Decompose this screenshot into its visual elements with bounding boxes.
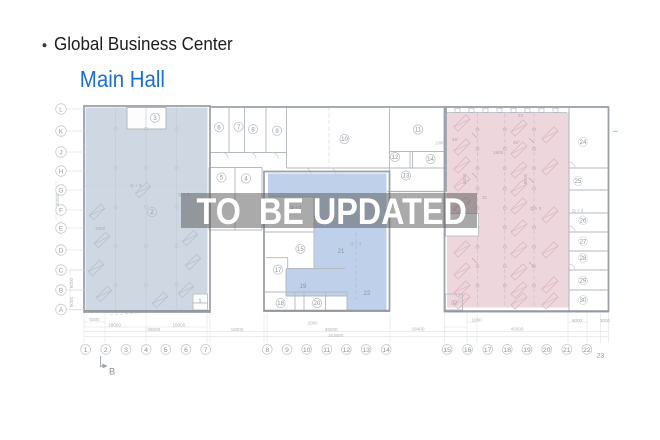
svg-text:6: 6 <box>184 347 188 354</box>
svg-text:18000: 18000 <box>231 327 244 332</box>
svg-text:6000: 6000 <box>572 318 583 323</box>
svg-text:Main Hall: Main Hall <box>80 66 165 93</box>
svg-text:45000: 45000 <box>511 327 524 332</box>
svg-text:22: 22 <box>583 347 591 354</box>
svg-text:26: 26 <box>580 219 587 225</box>
svg-text:B: B <box>109 366 115 376</box>
svg-text:TO BE UPDATED: TO BE UPDATED <box>197 192 467 232</box>
svg-text:A: A <box>59 307 64 314</box>
svg-text:11: 11 <box>323 347 330 354</box>
svg-text:10: 10 <box>303 347 311 354</box>
svg-text:18400: 18400 <box>412 327 425 332</box>
svg-text:2: 2 <box>104 347 108 354</box>
svg-text:20: 20 <box>543 347 551 354</box>
svg-text:Q + 3: Q + 3 <box>130 183 142 188</box>
svg-text:5: 5 <box>220 176 224 182</box>
svg-text:1: 1 <box>198 299 201 305</box>
svg-text:25: 25 <box>575 179 582 185</box>
svg-text:36000: 36000 <box>147 327 160 332</box>
svg-text:14: 14 <box>382 347 390 354</box>
svg-text:6000: 6000 <box>462 173 467 184</box>
svg-text:31: 31 <box>482 195 488 200</box>
svg-text:24: 24 <box>580 140 587 146</box>
svg-text:36000: 36000 <box>325 327 338 332</box>
svg-text:4: 4 <box>244 177 248 183</box>
svg-text:17: 17 <box>275 268 282 274</box>
svg-text:6000: 6000 <box>89 317 100 322</box>
svg-text:23: 23 <box>518 113 524 118</box>
svg-text:23: 23 <box>597 353 605 360</box>
svg-text:27: 27 <box>580 239 587 245</box>
svg-text:B: B <box>59 287 64 294</box>
svg-text:1900: 1900 <box>95 226 106 231</box>
svg-text:32: 32 <box>451 301 457 307</box>
svg-text:J: J <box>59 149 62 156</box>
svg-text:1000: 1000 <box>471 318 482 323</box>
svg-text:11: 11 <box>415 128 422 134</box>
svg-text:19: 19 <box>523 347 531 354</box>
svg-text:1: 1 <box>84 347 88 354</box>
svg-text:7: 7 <box>237 125 241 131</box>
svg-text:4: 4 <box>144 347 148 354</box>
svg-text:20: 20 <box>314 301 321 307</box>
svg-text:18: 18 <box>504 347 512 354</box>
svg-text:8: 8 <box>265 347 269 354</box>
svg-text:19: 19 <box>300 284 307 290</box>
svg-text:8: 8 <box>251 127 255 133</box>
svg-text:13: 13 <box>362 347 370 354</box>
svg-text:7: 7 <box>204 347 208 354</box>
svg-text:5: 5 <box>164 347 168 354</box>
svg-text:21: 21 <box>563 347 571 354</box>
svg-text:28: 28 <box>580 256 587 262</box>
svg-text:13: 13 <box>403 174 410 180</box>
svg-text:Q + 3: Q + 3 <box>350 241 362 246</box>
svg-text:15: 15 <box>443 347 451 354</box>
svg-text:C: C <box>59 267 64 274</box>
svg-text:K: K <box>59 128 64 135</box>
svg-text:3000: 3000 <box>600 318 611 323</box>
svg-text:18000: 18000 <box>108 323 121 328</box>
svg-text:29: 29 <box>580 279 587 285</box>
svg-text:Global Business Center: Global Business Center <box>54 34 233 55</box>
svg-text:Q + 3: Q + 3 <box>530 206 542 211</box>
svg-text:17: 17 <box>484 347 492 354</box>
svg-text:F: F <box>59 207 63 214</box>
svg-text:153600: 153600 <box>328 333 344 338</box>
svg-text:22: 22 <box>364 291 371 297</box>
svg-text:12: 12 <box>343 347 351 354</box>
svg-text:6000: 6000 <box>523 173 528 184</box>
svg-text:45°: 45° <box>513 140 520 145</box>
svg-text:H: H <box>59 168 64 175</box>
svg-text:30: 30 <box>580 298 587 304</box>
svg-text:2000: 2000 <box>307 321 318 326</box>
svg-text:21: 21 <box>338 249 345 255</box>
svg-text:9: 9 <box>275 129 279 135</box>
svg-text:14: 14 <box>427 157 434 163</box>
svg-text:3: 3 <box>124 347 128 354</box>
svg-text:D: D <box>59 247 64 254</box>
svg-text:Q + 3: Q + 3 <box>572 208 584 213</box>
svg-text:E: E <box>59 225 64 232</box>
svg-text:18: 18 <box>277 301 284 307</box>
svg-text:12: 12 <box>392 155 399 161</box>
svg-text:15: 15 <box>297 247 304 253</box>
svg-text:L: L <box>59 106 63 113</box>
svg-text:G: G <box>58 187 63 194</box>
svg-text:6: 6 <box>217 126 221 132</box>
svg-text:1900: 1900 <box>493 150 504 155</box>
svg-text:18000: 18000 <box>173 323 186 328</box>
svg-text:16: 16 <box>464 347 472 354</box>
svg-text:9: 9 <box>285 347 289 354</box>
svg-text:45°: 45° <box>452 137 459 142</box>
svg-text:10: 10 <box>341 137 348 143</box>
